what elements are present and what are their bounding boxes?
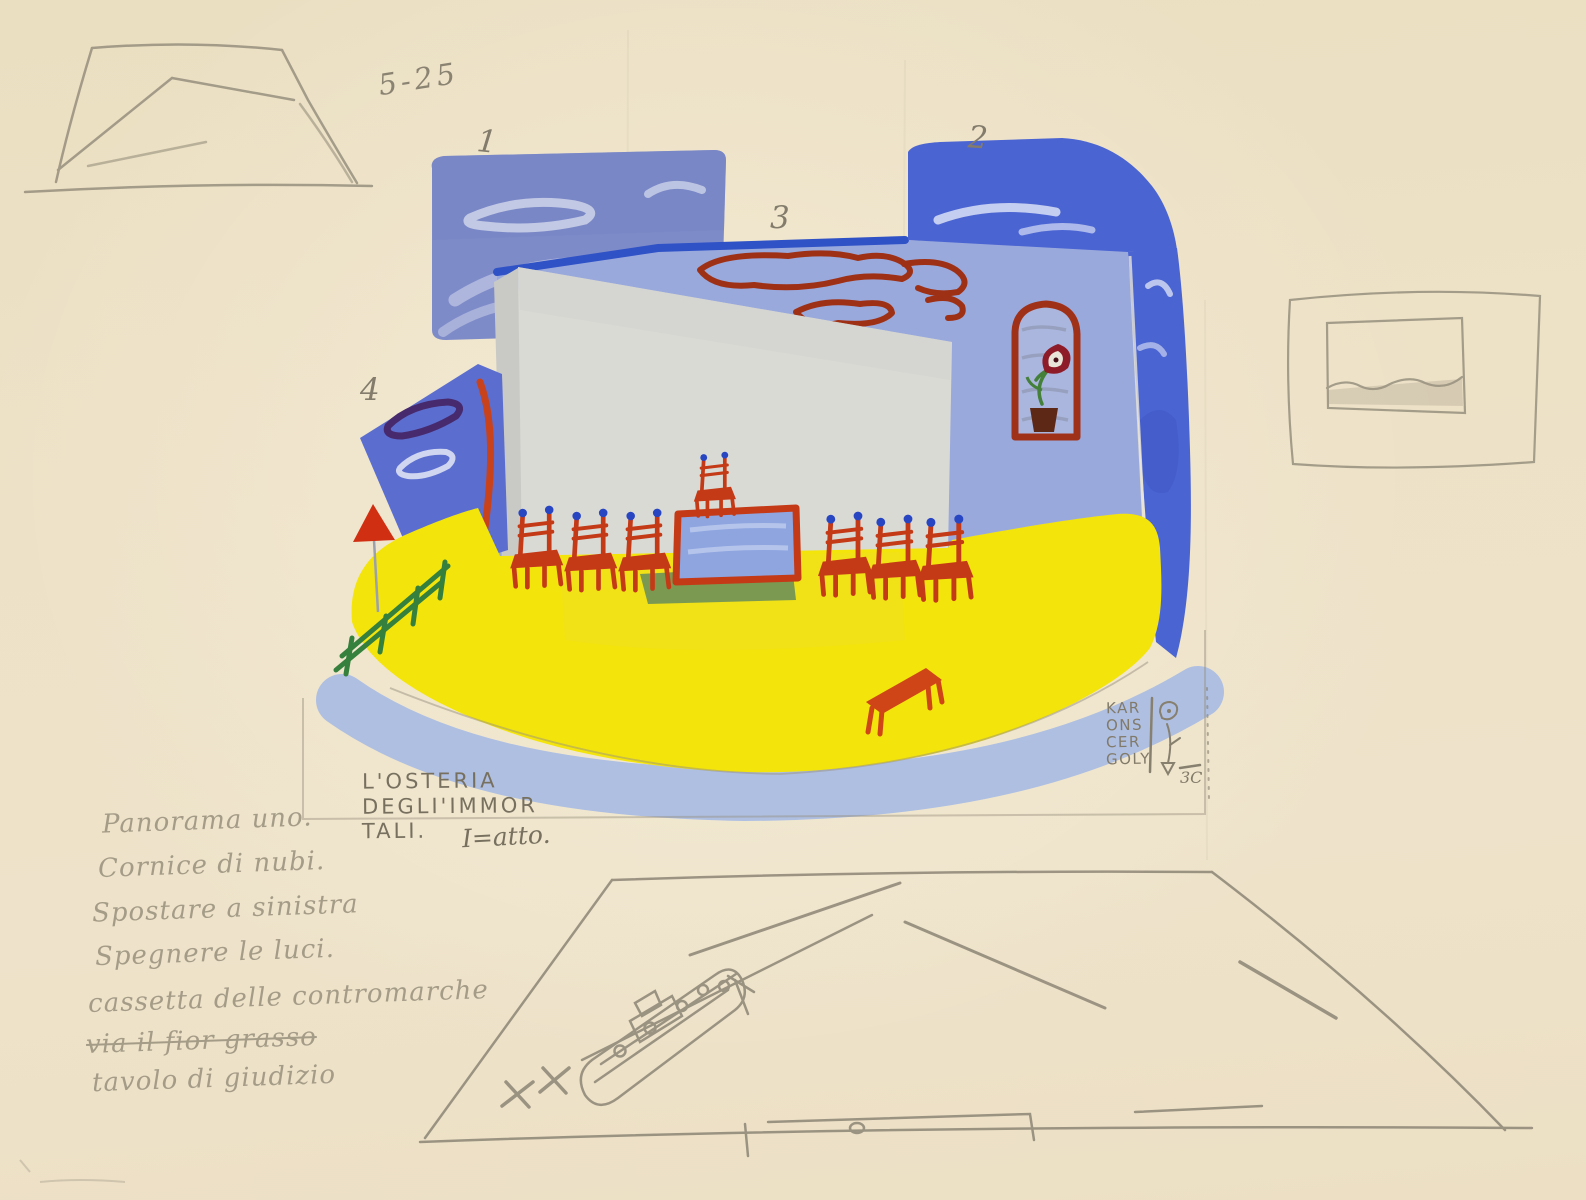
caption-line-3: TALI. <box>362 818 427 845</box>
pencil-sketch-right <box>1288 292 1540 468</box>
corner-marks <box>20 1160 125 1182</box>
signature-line-3: CER <box>1106 734 1141 752</box>
pencil-sketch-bottom <box>420 872 1532 1156</box>
pencil-sketch-top-left <box>25 44 372 192</box>
ship-sketch <box>581 970 754 1105</box>
table <box>676 508 798 582</box>
panel-number-2: 2 <box>967 119 989 156</box>
caption-line-2: DEGLI'IMMOR <box>362 792 538 820</box>
signature-line-1: KAR <box>1106 700 1141 718</box>
signature-line-2: ONS <box>1106 717 1143 735</box>
caption-act-label: I=atto. <box>461 820 551 854</box>
panel-number-1: 1 <box>475 123 498 161</box>
niche <box>1015 304 1077 437</box>
signature-mark: 3C <box>1180 768 1202 787</box>
signature-line-4: GOLY <box>1106 751 1151 769</box>
scanned-stage-design-artwork: 5-25 1 2 3 4 L'OSTERIA DEGLI'IMMOR TALI.… <box>0 0 1586 1200</box>
stage-model <box>336 138 1198 795</box>
artwork-canvas <box>0 0 1586 1200</box>
panel-number-3: 3 <box>770 200 790 236</box>
panel-number-4: 4 <box>360 372 380 408</box>
caption-line-1: L'OSTERIA <box>362 767 498 794</box>
